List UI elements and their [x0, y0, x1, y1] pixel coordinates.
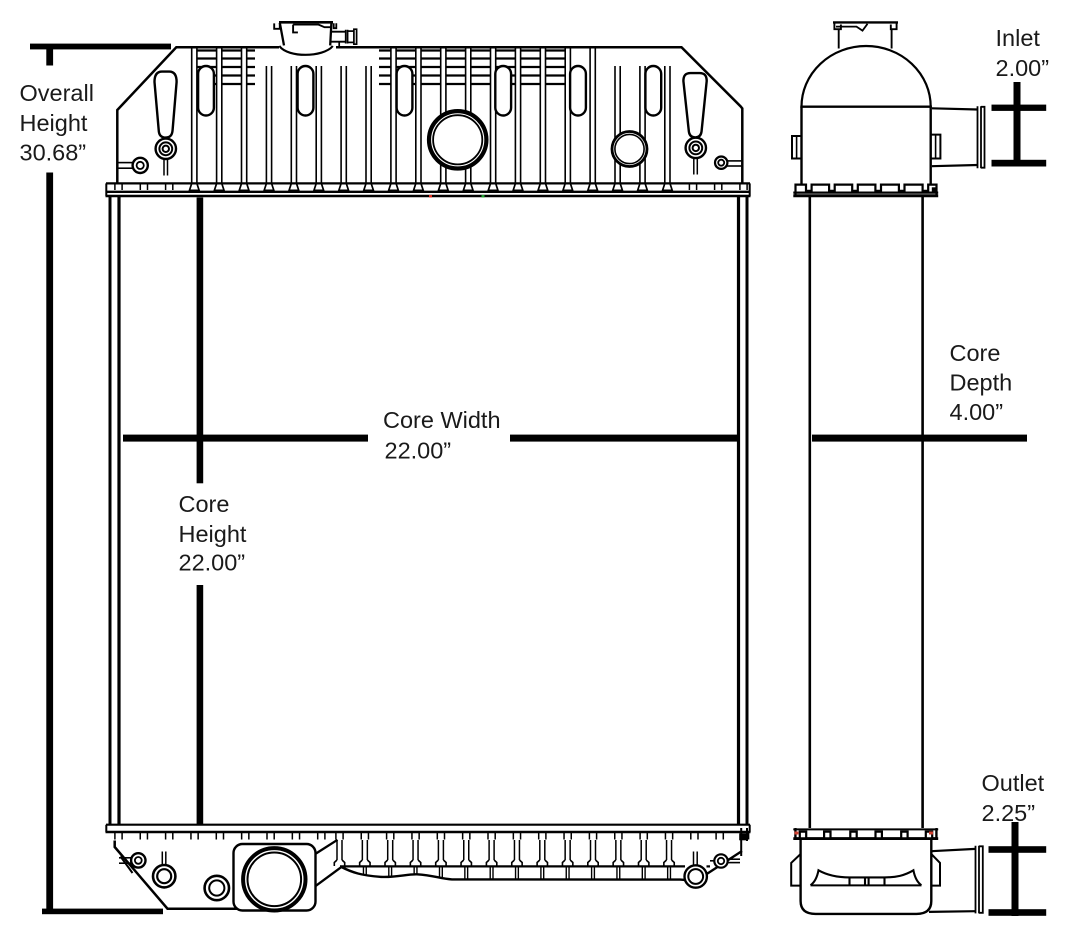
svg-text:30.68”: 30.68”: [20, 140, 87, 166]
svg-text:Core: Core: [179, 491, 230, 517]
svg-text:Core: Core: [950, 340, 1001, 366]
svg-text:2.00”: 2.00”: [996, 55, 1050, 81]
svg-text:Inlet: Inlet: [996, 25, 1041, 51]
svg-text:Depth: Depth: [950, 370, 1013, 396]
svg-text:Height: Height: [179, 521, 247, 547]
svg-text:Core Width: Core Width: [383, 407, 501, 433]
svg-text:22.00”: 22.00”: [385, 438, 452, 464]
svg-text:22.00”: 22.00”: [179, 550, 246, 576]
svg-text:4.00”: 4.00”: [950, 399, 1004, 425]
svg-text:Height: Height: [20, 110, 88, 136]
svg-text:2.25”: 2.25”: [982, 800, 1036, 826]
svg-text:Overall: Overall: [20, 80, 94, 106]
svg-text:Outlet: Outlet: [982, 770, 1045, 796]
